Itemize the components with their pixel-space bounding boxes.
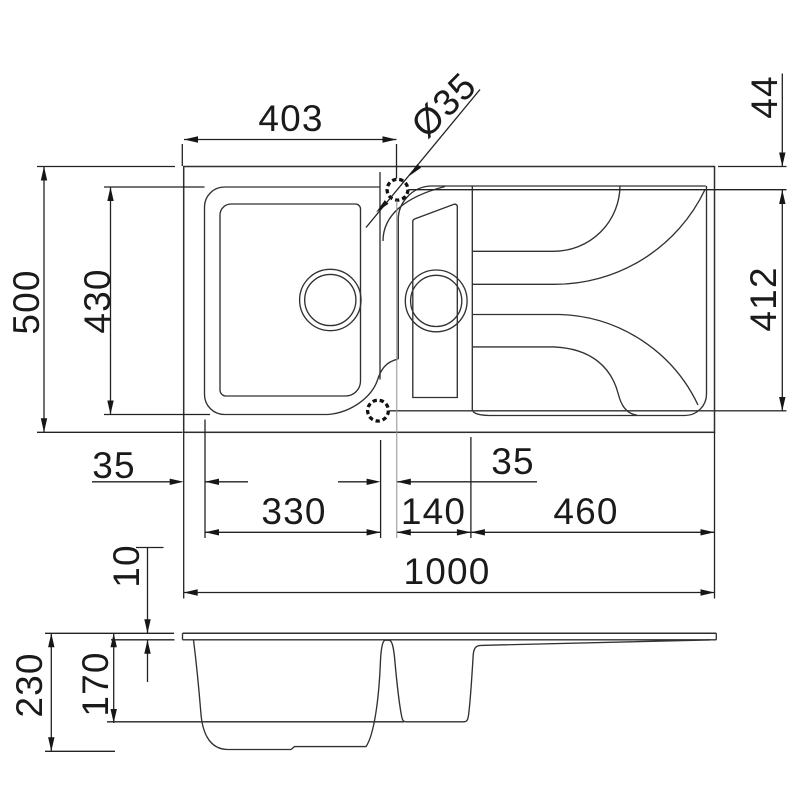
svg-text:403: 403 [258,98,323,139]
svg-text:170: 170 [75,651,116,716]
svg-text:230: 230 [9,652,50,717]
svg-text:35: 35 [491,441,535,482]
svg-text:500: 500 [6,269,47,334]
svg-text:10: 10 [106,544,147,588]
svg-text:430: 430 [77,268,118,333]
svg-text:1000: 1000 [403,551,490,592]
svg-text:35: 35 [92,445,136,486]
svg-text:460: 460 [553,491,618,532]
svg-text:412: 412 [743,266,784,331]
svg-text:140: 140 [401,491,466,532]
svg-text:44: 44 [744,75,785,119]
svg-text:330: 330 [261,491,326,532]
